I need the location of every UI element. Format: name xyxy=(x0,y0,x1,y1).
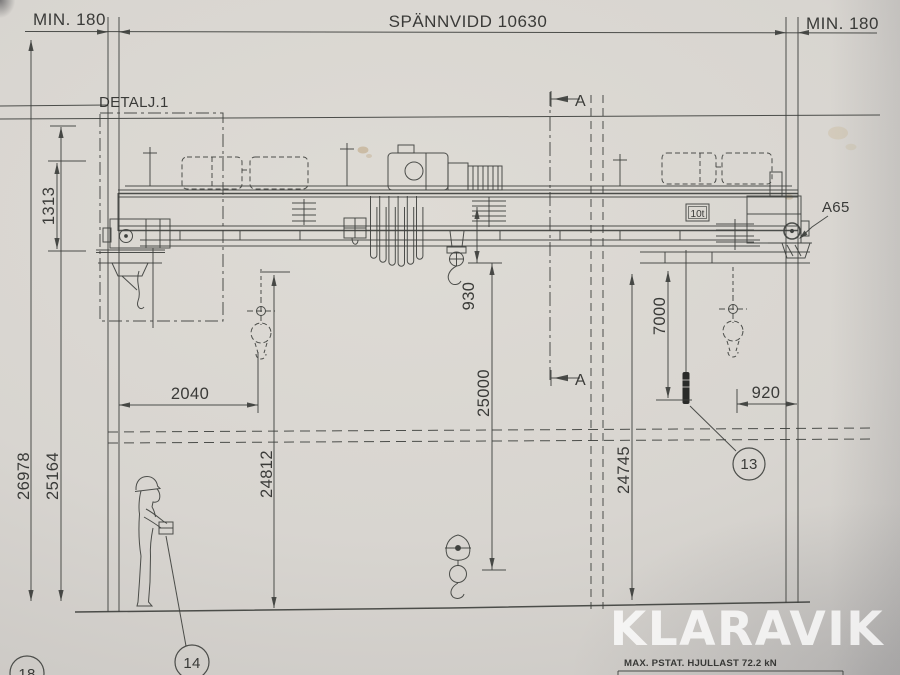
section-markers xyxy=(551,91,580,386)
balloon-13-label: 13 xyxy=(740,456,757,473)
section-a-bottom-label: A xyxy=(575,372,586,389)
dim-930: 930 xyxy=(460,282,478,311)
min-180-right-label: MIN. 180 xyxy=(806,14,879,33)
min-180-left-label: MIN. 180 xyxy=(33,10,106,29)
title-block-edge xyxy=(618,671,843,675)
dim-7000: 7000 xyxy=(651,297,669,335)
balloon-18-label: 18 xyxy=(18,666,35,675)
dim-26978: 26978 xyxy=(15,452,33,500)
dim-24812: 24812 xyxy=(258,450,276,498)
dim-920: 920 xyxy=(752,384,781,402)
a65-leader xyxy=(799,216,828,239)
max-wheel-load-note: MAX. PSTAT. HJULLAST 72.2 kN xyxy=(624,658,777,669)
lower-hook-block xyxy=(445,535,471,598)
dim-24745: 24745 xyxy=(615,446,633,494)
hook-reference-left xyxy=(247,269,275,359)
left-end-truck xyxy=(96,219,170,328)
klaravik-watermark: KLARAVIK xyxy=(610,602,884,657)
dim-25000: 25000 xyxy=(475,369,493,417)
a65-label: A65 xyxy=(822,199,850,216)
capacity-plate-label: 10t xyxy=(691,209,705,220)
balloon-14-label: 14 xyxy=(183,655,200,672)
crane-drawing-photo: MIN. 180 SPÄNNVIDD 10630 MIN. 180 DETALJ… xyxy=(0,0,900,675)
detail-1-label: DETALJ.1 xyxy=(99,94,169,111)
drawing-canvas: MIN. 180 SPÄNNVIDD 10630 MIN. 180 DETALJ… xyxy=(0,0,900,675)
spannvidd-label: SPÄNNVIDD 10630 xyxy=(389,12,548,31)
crane-bridge-linework xyxy=(118,143,798,250)
section-a-top-label: A xyxy=(575,93,586,110)
hook-reference-right xyxy=(719,267,747,357)
dim-1313: 1313 xyxy=(40,187,58,225)
dim-25164: 25164 xyxy=(44,452,62,500)
pendant-control xyxy=(683,250,737,451)
dim-2040: 2040 xyxy=(171,385,209,403)
parked-hoist-outlines xyxy=(182,153,772,189)
